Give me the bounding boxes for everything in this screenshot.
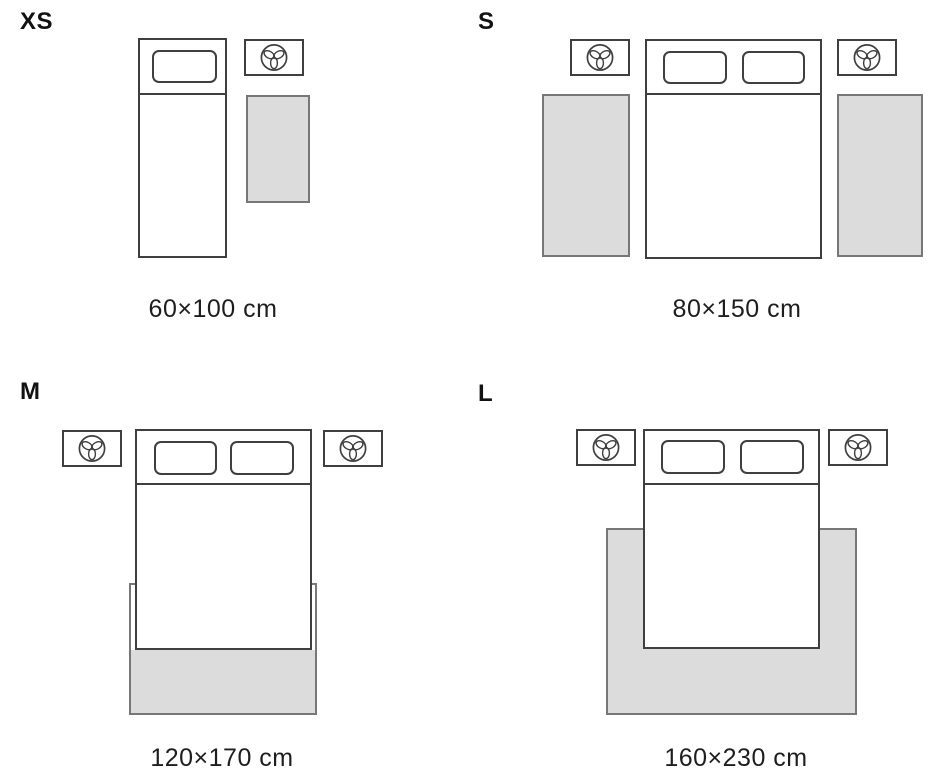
nightstand-s-right [837, 39, 897, 76]
rug-dimensions-xs: 60×100 cm [78, 295, 348, 324]
pillow-left [661, 440, 725, 474]
rug-s-left [542, 94, 630, 257]
rug-dimensions-m: 120×170 cm [87, 744, 357, 773]
bedside-lamp-icon [75, 433, 109, 464]
pillow [152, 50, 217, 83]
rug-m-visible-area [131, 650, 315, 713]
bedside-lamp-icon [336, 433, 370, 464]
rug-dimensions-s: 80×150 cm [602, 295, 872, 324]
pillow-left [154, 441, 217, 475]
rug-dimensions-l: 160×230 cm [601, 744, 871, 773]
nightstand-m-right [323, 430, 383, 467]
size-label-l: L [478, 380, 493, 408]
bedside-lamp-icon [850, 42, 884, 73]
nightstand-m-left [62, 430, 122, 467]
nightstand-s-left [570, 39, 630, 76]
double-bed-l [643, 429, 820, 649]
nightstand-xs [244, 39, 304, 76]
pillow-right [230, 441, 294, 475]
size-label-m: M [20, 378, 41, 406]
bedside-lamp-icon [583, 42, 617, 73]
nightstand-l-left [576, 429, 636, 466]
single-bed-xs [138, 38, 227, 258]
nightstand-l-right [828, 429, 888, 466]
bed-headboard [137, 431, 310, 485]
size-label-xs: XS [20, 8, 53, 36]
bedside-lamp-icon [841, 432, 875, 463]
pillow-right [740, 440, 804, 474]
rug-size-guide: XS 60×100 cm S [0, 0, 940, 780]
bed-headboard [645, 431, 818, 485]
bedside-lamp-icon [257, 42, 291, 73]
rug-xs [246, 95, 310, 203]
bedside-lamp-icon [589, 432, 623, 463]
size-label-s: S [478, 8, 495, 36]
double-bed-m [135, 429, 312, 650]
double-bed-s [645, 39, 822, 259]
bed-headboard [140, 40, 225, 95]
bed-headboard [647, 41, 820, 95]
rug-s-right [837, 94, 923, 257]
pillow-left [663, 51, 727, 84]
pillow-right [742, 51, 805, 84]
